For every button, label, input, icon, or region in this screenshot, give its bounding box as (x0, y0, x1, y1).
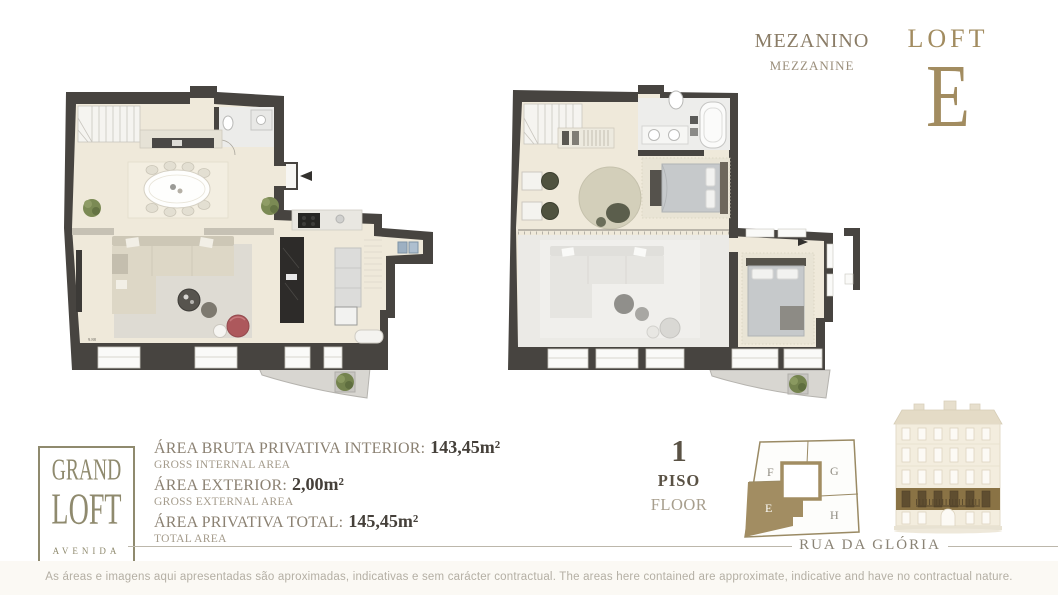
floor-label-en: FLOOR (648, 495, 710, 515)
dining-table (144, 170, 210, 208)
area-label-en: GROSS EXTERNAL AREA (154, 496, 534, 508)
kitchen-sink-icon (336, 215, 344, 223)
bedroom-1 (642, 158, 730, 218)
brochure-page: 9.88 (0, 0, 1058, 595)
area-label-en: GROSS INTERNAL AREA (154, 459, 534, 471)
wardrobe (558, 128, 614, 148)
key-plan-unit-f: F (767, 465, 774, 479)
radiator (72, 228, 114, 235)
highlighted-floor-band (896, 488, 1000, 510)
balcony-mezzanine (710, 370, 830, 398)
sink-icon (257, 116, 266, 125)
disclaimer-text: As áreas e imagens aqui apresentadas são… (0, 561, 1058, 583)
roof (894, 410, 1002, 424)
area-label-en: TOTAL AREA (154, 533, 534, 545)
logo-line-avenida: AVENIDA (40, 546, 133, 556)
street-name: RUA DA GLÓRIA (797, 537, 943, 554)
sink-icon (669, 130, 680, 141)
logo-line-grand: GRAND (47, 452, 126, 487)
toilet-icon (223, 116, 233, 130)
floor-indicator: 1 PISO FLOOR (648, 433, 710, 515)
dishwasher (335, 307, 357, 325)
floor-plan-mezzanine (492, 78, 862, 408)
sideboard-cabinets (140, 130, 222, 148)
disclaimer-bar: As áreas e imagens aqui apresentadas são… (0, 561, 1058, 595)
street-divider-right (948, 546, 1058, 547)
tv-unit (76, 250, 82, 312)
loft-unit-letter: E (906, 56, 989, 139)
plant-icon (83, 199, 101, 217)
grand-loft-avenida-logo: GRAND LOFT AVENIDA (38, 446, 135, 574)
logo-line-loft: LOFT (47, 486, 126, 536)
area-label-pt: ÁREA BRUTA PRIVATIVA INTERIOR: (154, 440, 425, 457)
balcony-level1 (259, 368, 370, 398)
windows-level1 (98, 347, 342, 368)
area-value: 145,45m² (348, 511, 418, 531)
key-plan-unit-e: E (765, 501, 772, 515)
stairs-level1 (78, 106, 140, 142)
kitchen-cabinets (335, 248, 361, 307)
area-summary: ÁREA BRUTA PRIVATIVA INTERIOR:143,45m² G… (154, 437, 534, 548)
area-value: 2,00m² (292, 474, 344, 494)
area-row-exterior: ÁREA EXTERIOR:2,00m² GROSS EXTERNAL AREA (154, 474, 534, 508)
bed-bench (650, 170, 662, 206)
partition-wall (729, 236, 738, 347)
dimension-label: 9.88 (88, 337, 97, 342)
area-row-total: ÁREA PRIVATIVA TOTAL:145,45m² TOTAL AREA (154, 511, 534, 545)
floor-plan-level1: 9.88 (52, 78, 442, 408)
building-elevation (884, 398, 1012, 536)
desk (522, 202, 542, 220)
side-table (214, 325, 227, 338)
area-label-pt: ÁREA EXTERIOR: (154, 477, 287, 494)
coffee-table (201, 302, 217, 318)
chair-icon (542, 173, 559, 190)
key-plan-unit-g: G (830, 464, 839, 478)
washer-icon (398, 242, 407, 253)
key-plan-courtyard (782, 463, 820, 499)
bathroom-mezzanine (638, 91, 730, 156)
coffee-table (178, 289, 200, 311)
red-armchair (227, 315, 249, 337)
stove-icon (298, 213, 320, 228)
mezzanine-label: MEZANINO MEZZANINE (748, 30, 876, 74)
plant-icon (261, 197, 279, 215)
area-value: 143,45m² (430, 437, 500, 457)
loft-title: LOFT E (896, 24, 1000, 139)
lounge-chair (606, 203, 630, 223)
door-gap (729, 238, 738, 252)
laundry-nook (355, 330, 383, 343)
entry-nook (286, 164, 296, 188)
area-label-pt: ÁREA PRIVATIVA TOTAL: (154, 514, 343, 531)
floor-label-pt: PISO (648, 471, 710, 491)
entry-arrow-icon (300, 171, 312, 181)
mezzanine-label-pt: MEZANINO (748, 30, 876, 53)
headboard (720, 162, 728, 214)
dining-area (128, 162, 228, 219)
void-double-height (518, 235, 729, 347)
blanket (780, 306, 804, 330)
toilet-icon (669, 91, 683, 109)
entrance-door (941, 509, 955, 526)
key-plan: F G E H (737, 436, 867, 548)
ghost-coffee-table (614, 294, 634, 314)
headboard (746, 258, 806, 266)
street-divider-left (128, 546, 792, 547)
dryer-icon (409, 242, 418, 253)
chair-icon (542, 203, 559, 220)
area-row-interior: ÁREA BRUTA PRIVATIVA INTERIOR:143,45m² G… (154, 437, 534, 471)
ghost-armchair (660, 318, 680, 338)
adjacent-unit-fragment (844, 228, 860, 290)
radiator (204, 228, 274, 235)
floor-number: 1 (648, 433, 710, 469)
key-plan-unit-h: H (830, 508, 839, 522)
entry-door-gap (274, 166, 286, 186)
sink-icon (649, 130, 660, 141)
mezzanine-label-en: MEZZANINE (748, 58, 876, 74)
desk (522, 172, 542, 190)
